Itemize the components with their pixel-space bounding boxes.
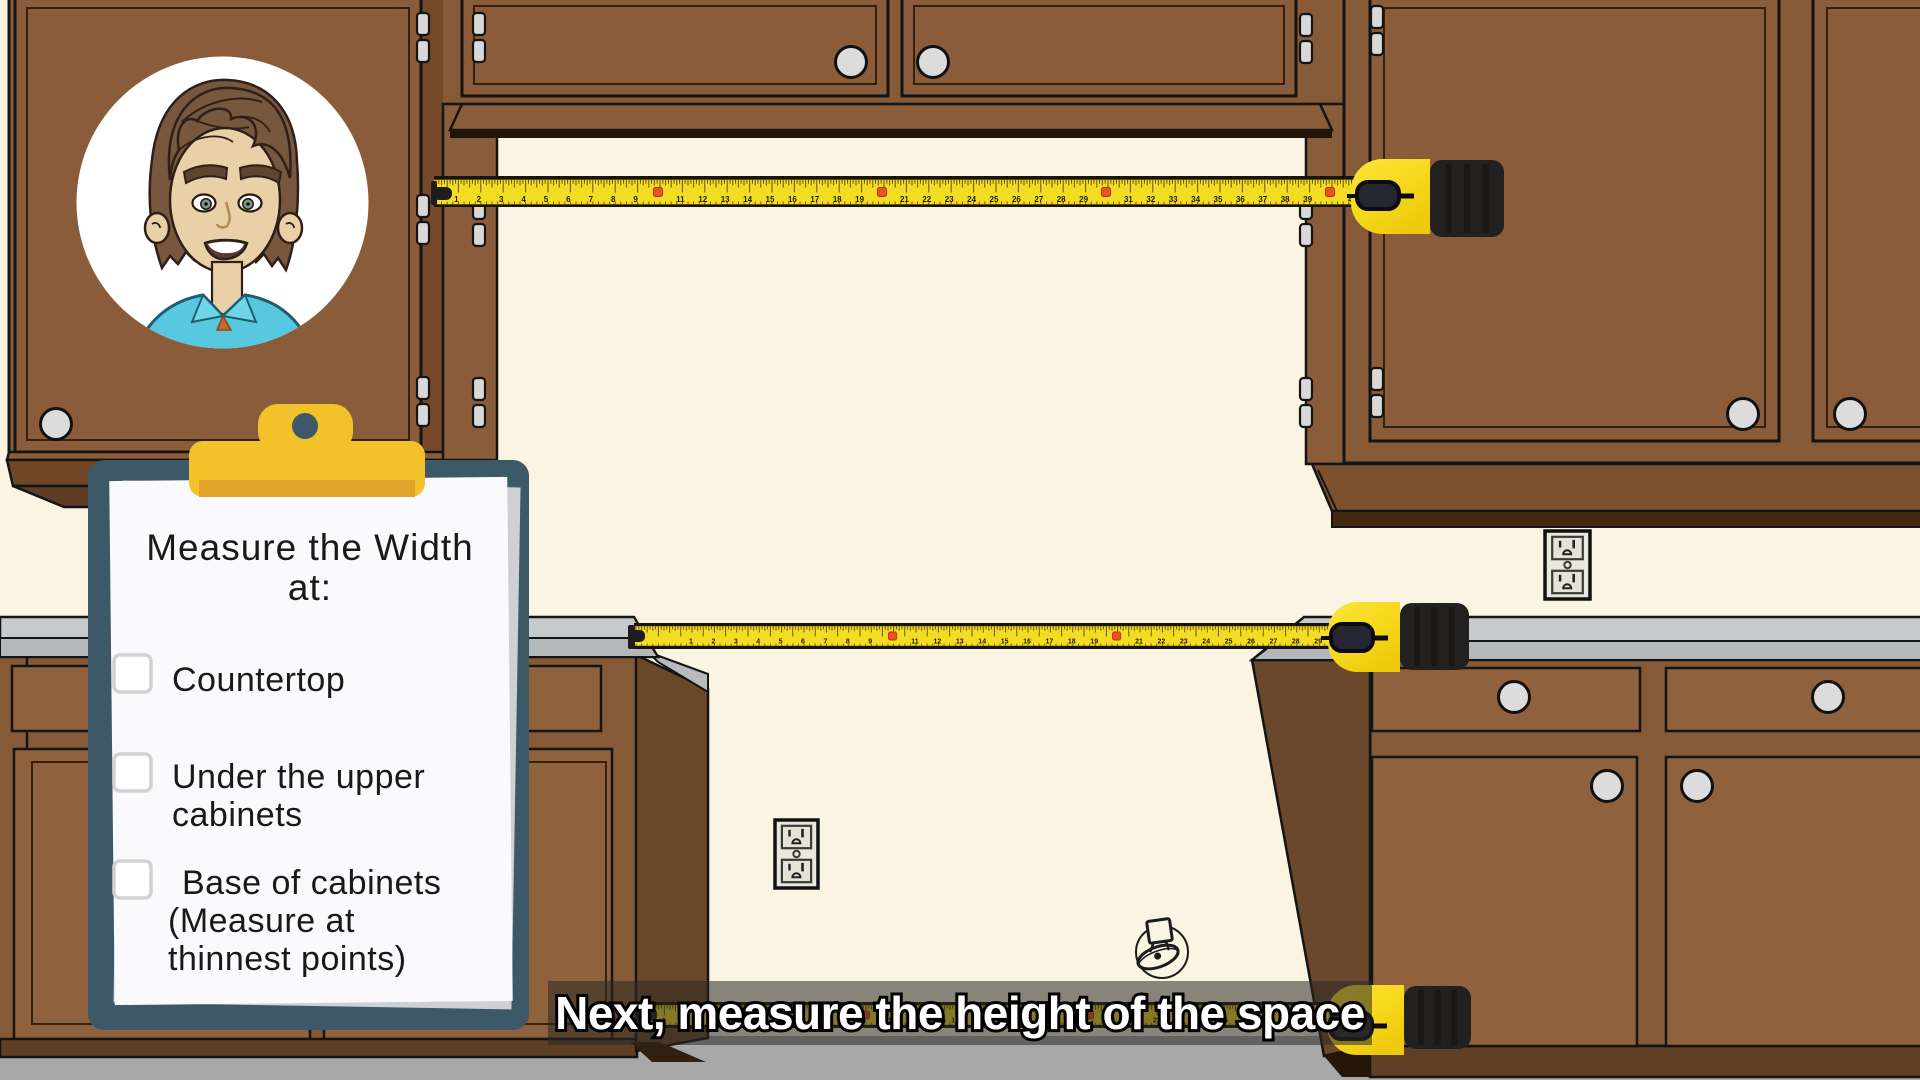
svg-text:34: 34 xyxy=(1191,195,1200,204)
svg-text:13: 13 xyxy=(721,195,730,204)
svg-text:25: 25 xyxy=(1225,638,1233,645)
svg-text:36: 36 xyxy=(1236,195,1245,204)
svg-text:6: 6 xyxy=(566,195,571,204)
svg-text:Next, measure the height of th: Next, measure the height of the space xyxy=(555,987,1365,1039)
svg-text:21: 21 xyxy=(1135,638,1143,645)
svg-text:15: 15 xyxy=(1001,638,1009,645)
svg-text:12: 12 xyxy=(698,195,707,204)
svg-text:19: 19 xyxy=(1090,638,1098,645)
svg-text:37: 37 xyxy=(1258,195,1267,204)
svg-text:23: 23 xyxy=(1180,638,1188,645)
svg-text:4: 4 xyxy=(756,638,760,645)
svg-text:33: 33 xyxy=(1169,195,1178,204)
svg-text:23: 23 xyxy=(945,195,954,204)
svg-text:6: 6 xyxy=(801,638,805,645)
svg-text:39: 39 xyxy=(1303,195,1312,204)
svg-text:15: 15 xyxy=(766,195,775,204)
svg-text:14: 14 xyxy=(743,195,752,204)
svg-text:16: 16 xyxy=(788,195,797,204)
svg-text:24: 24 xyxy=(1202,638,1210,645)
svg-text:26: 26 xyxy=(1012,195,1021,204)
svg-text:38: 38 xyxy=(1281,195,1290,204)
svg-text:4: 4 xyxy=(521,195,526,204)
svg-text:8: 8 xyxy=(846,638,850,645)
svg-text:24: 24 xyxy=(967,195,976,204)
svg-text:Base of cabinets: Base of cabinets xyxy=(182,864,441,902)
svg-text:Countertop: Countertop xyxy=(172,661,345,699)
svg-text:2: 2 xyxy=(477,195,482,204)
svg-text:3: 3 xyxy=(499,195,504,204)
svg-text:17: 17 xyxy=(810,195,819,204)
svg-text:28: 28 xyxy=(1292,638,1300,645)
svg-text:(Measure at: (Measure at xyxy=(168,902,355,940)
svg-text:7: 7 xyxy=(589,195,594,204)
svg-text:2: 2 xyxy=(711,638,715,645)
svg-text:22: 22 xyxy=(922,195,931,204)
svg-text:21: 21 xyxy=(900,195,909,204)
svg-text:27: 27 xyxy=(1034,195,1043,204)
svg-text:cabinets: cabinets xyxy=(172,796,303,834)
svg-text:9: 9 xyxy=(868,638,872,645)
svg-text:1: 1 xyxy=(689,638,693,645)
svg-text:19: 19 xyxy=(855,195,864,204)
svg-text:31: 31 xyxy=(1124,195,1133,204)
svg-text:28: 28 xyxy=(1057,195,1066,204)
svg-text:32: 32 xyxy=(1146,195,1155,204)
svg-text:5: 5 xyxy=(779,638,783,645)
svg-text:18: 18 xyxy=(1068,638,1076,645)
svg-text:thinnest points): thinnest points) xyxy=(168,940,407,978)
svg-text:5: 5 xyxy=(544,195,549,204)
svg-text:25: 25 xyxy=(990,195,999,204)
svg-text:11: 11 xyxy=(911,638,919,645)
svg-text:13: 13 xyxy=(956,638,964,645)
svg-text:27: 27 xyxy=(1270,638,1278,645)
svg-text:17: 17 xyxy=(1046,638,1054,645)
svg-text:at:: at: xyxy=(288,567,332,608)
svg-text:Measure the Width: Measure the Width xyxy=(146,527,474,568)
svg-text:14: 14 xyxy=(978,638,986,645)
svg-text:16: 16 xyxy=(1023,638,1031,645)
svg-text:18: 18 xyxy=(833,195,842,204)
svg-text:26: 26 xyxy=(1247,638,1255,645)
svg-text:9: 9 xyxy=(633,195,638,204)
svg-text:3: 3 xyxy=(734,638,738,645)
svg-text:29: 29 xyxy=(1079,195,1088,204)
svg-text:7: 7 xyxy=(823,638,827,645)
svg-text:1: 1 xyxy=(454,195,459,204)
svg-text:11: 11 xyxy=(676,195,685,204)
svg-text:8: 8 xyxy=(611,195,616,204)
svg-text:22: 22 xyxy=(1158,638,1166,645)
svg-text:Under the upper: Under the upper xyxy=(172,758,425,796)
svg-text:35: 35 xyxy=(1214,195,1223,204)
svg-text:12: 12 xyxy=(934,638,942,645)
